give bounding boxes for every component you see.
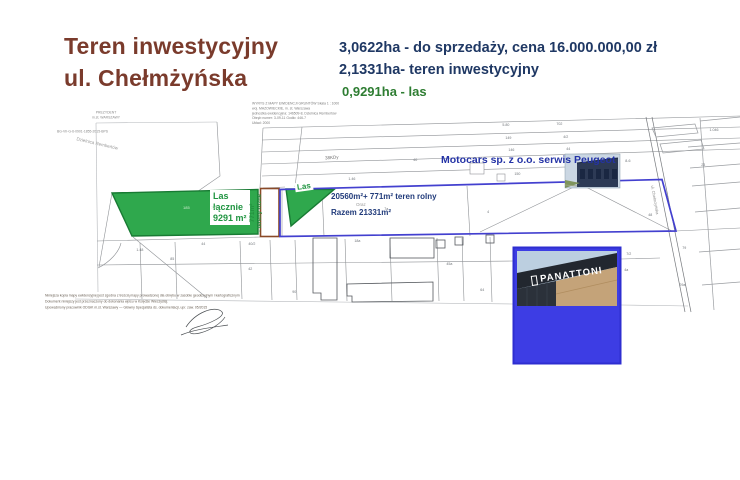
map-reference-number: BG-VII-G-6-0901-1855-2015-BPS bbox=[57, 129, 108, 133]
area-line1: 20560m²+ 771m² teren rolny bbox=[331, 192, 437, 201]
area-summary: 20560m²+ 771m² teren rolny Oraz Razem 21… bbox=[331, 192, 437, 217]
forest-label-line: Las bbox=[213, 191, 247, 202]
mixed-strip-label: 771m² - tereny różne bbox=[249, 191, 291, 235]
stat-sale-area-price: 3,0622ha - do sprzedaży, cena 16.000.000… bbox=[339, 38, 657, 60]
area-mid: Oraz bbox=[356, 202, 437, 207]
signature-scribble bbox=[181, 309, 228, 335]
offer-stats: 3,0622ha - do sprzedaży, cena 16.000.000… bbox=[339, 38, 657, 101]
flyer-root: Teren inwestycyjny ul. Chełmżyńska 3,062… bbox=[0, 0, 740, 480]
page-title: Teren inwestycyjny ul. Chełmżyńska bbox=[64, 30, 278, 94]
building-outlines bbox=[313, 235, 494, 302]
title-line2: ul. Chełmżyńska bbox=[64, 62, 278, 94]
area-line2: Razem 21331m² bbox=[331, 208, 437, 217]
map-header-right-line: Układ: 2000 bbox=[252, 121, 339, 126]
map-header-left-line: m.st. WARSZAWY bbox=[92, 115, 120, 120]
motocars-caption: Motocars sp. z o.o. serwis Peugeot bbox=[441, 154, 615, 166]
stat-investment-area: 2,1331ha- teren inwestycyjny bbox=[339, 60, 657, 82]
panattoni-card bbox=[514, 248, 621, 364]
map-header-right: WYRYS Z MAPY EWIDENCJI GRUNTÓW Skala 1 :… bbox=[252, 101, 339, 126]
forest-area-label: Las łącznie 9291 m² bbox=[210, 190, 250, 225]
panattoni-tower-icon bbox=[531, 275, 538, 286]
footer-note-line: Niniejsza kopia mapy ewidencyjnej jest z… bbox=[45, 293, 240, 299]
strip-label-line: - tereny różne bbox=[257, 191, 265, 235]
map-footer-notes: Niniejsza kopia mapy ewidencyjnej jest z… bbox=[45, 293, 240, 310]
road-lines bbox=[646, 117, 740, 312]
forest-label-line: 9291 m² bbox=[213, 213, 247, 224]
stat-forest-area: 0,9291ha - las bbox=[339, 82, 657, 102]
map-header-left: PREZYDENT m.st. WARSZAWY bbox=[92, 110, 120, 121]
footer-note-line: Upoważniony pracownik ODGiK m.st. Warsza… bbox=[45, 305, 240, 311]
title-line1: Teren inwestycyjny bbox=[64, 30, 278, 62]
strip-label-line: 771m² bbox=[249, 191, 257, 235]
forest-label-line: łącznie bbox=[213, 202, 247, 213]
street-label: 38KDy bbox=[325, 155, 339, 161]
forest-triangle bbox=[286, 189, 334, 226]
